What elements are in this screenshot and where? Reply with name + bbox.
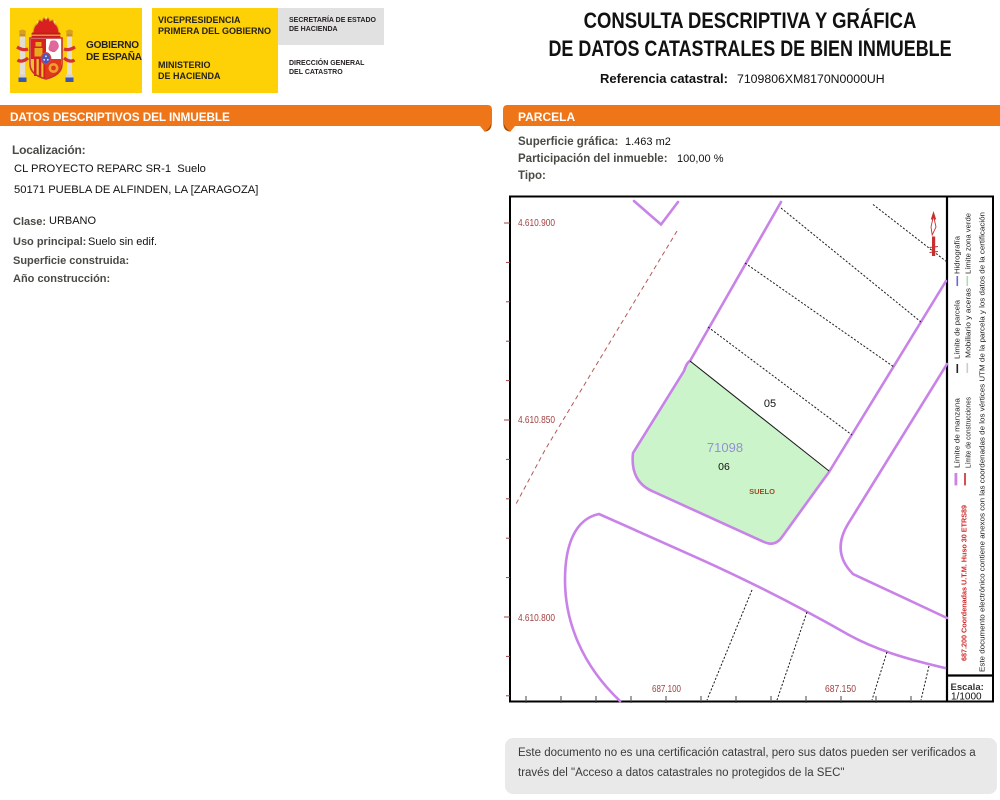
svg-text:4.610.900: 4.610.900 — [518, 217, 555, 229]
svg-text:687.100: 687.100 — [652, 683, 681, 695]
svg-text:Límite de manzana: Límite de manzana — [953, 397, 962, 468]
svg-text:Límite de parcela: Límite de parcela — [953, 299, 962, 359]
svg-text:1/1000: 1/1000 — [951, 692, 982, 703]
svg-text:71098: 71098 — [707, 440, 743, 455]
svg-text:05: 05 — [764, 398, 776, 410]
svg-text:687.150: 687.150 — [825, 683, 856, 695]
svg-text:Límite de construcciones: Límite de construcciones — [964, 397, 973, 468]
svg-text:4.610.800: 4.610.800 — [518, 612, 555, 624]
svg-text:Este documento electrónico con: Este documento electrónico contiene anex… — [978, 212, 987, 672]
svg-text:687.200 Coordenadas U.T.M. Hus: 687.200 Coordenadas U.T.M. Huso 30 ETRS8… — [959, 505, 968, 661]
svg-text:Hidrografía: Hidrografía — [953, 235, 962, 274]
svg-text:4.610.850: 4.610.850 — [518, 414, 555, 426]
svg-text:Mobiliario y aceras: Mobiliario y aceras — [964, 288, 973, 358]
svg-text:Límite zona verde: Límite zona verde — [964, 213, 973, 274]
svg-text:SUELO: SUELO — [749, 487, 775, 496]
svg-text:06: 06 — [718, 461, 730, 473]
